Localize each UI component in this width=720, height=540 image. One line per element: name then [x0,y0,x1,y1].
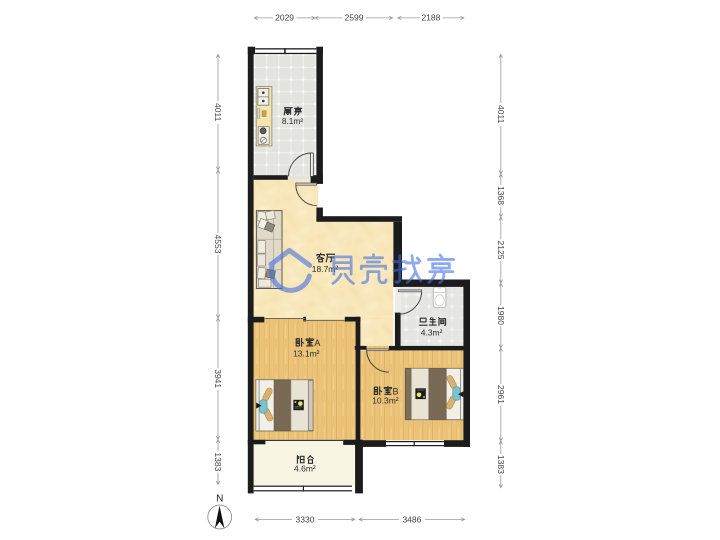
svg-text:8.1m²: 8.1m² [282,116,303,126]
svg-text:3330: 3330 [296,514,315,524]
svg-text:2029: 2029 [275,13,294,23]
svg-text:2188: 2188 [421,13,440,23]
svg-text:2125: 2125 [496,241,506,260]
svg-text:1383: 1383 [496,455,506,474]
svg-text:1383: 1383 [213,452,223,471]
svg-text:N: N [216,494,223,505]
svg-text:4553: 4553 [213,235,223,254]
svg-text:2599: 2599 [345,13,364,23]
svg-text:4.6m²: 4.6m² [294,464,316,474]
svg-text:4011: 4011 [496,105,506,124]
svg-text:13.1m²: 13.1m² [293,349,320,359]
svg-text:1368: 1368 [496,186,506,205]
svg-text:3941: 3941 [213,369,223,388]
svg-text:3486: 3486 [402,514,421,524]
svg-text:4011: 4011 [213,103,223,122]
svg-text:10.3m²: 10.3m² [372,396,399,406]
svg-text:2961: 2961 [496,385,506,404]
svg-text:1980: 1980 [496,306,506,325]
svg-text:4.3m²: 4.3m² [421,327,443,337]
svg-text:A: A [314,338,320,348]
